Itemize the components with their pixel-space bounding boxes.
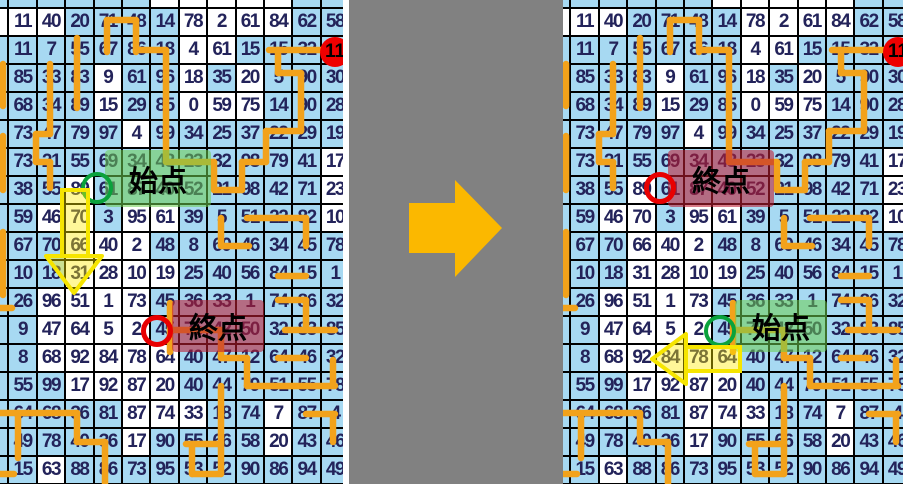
grid-cell: 46 — [797, 231, 827, 261]
grid-cell: 39 — [178, 203, 208, 233]
grid-cell: 29 — [121, 91, 151, 121]
grid-cell: 10 — [683, 259, 713, 289]
grid-cell: 20 — [797, 63, 827, 93]
grid-cell: 95 — [711, 455, 741, 484]
grid-cell: 79 — [235, 371, 265, 401]
grid-cell: 10 — [569, 259, 599, 289]
grid-cell: 38 — [569, 175, 599, 205]
grid-cell: 21 — [36, 147, 66, 177]
grid-cell: 95 — [149, 455, 179, 484]
grid-cell: 81 — [655, 399, 685, 429]
grid-cell: 34 — [740, 119, 770, 149]
grid-cell: 4 — [683, 119, 713, 149]
grid-cell: 31 — [64, 259, 94, 289]
grid-cell: 8 — [178, 231, 208, 261]
grid-cell: 17 — [882, 147, 903, 177]
grid-cell: 96 — [36, 287, 66, 317]
grid-cell: 10 — [882, 203, 903, 233]
grid-cell: 64 — [64, 315, 94, 345]
maze-panel-before: 1140207148147826184625811755678618461151… — [0, 0, 343, 484]
grid-cell: 48 — [683, 7, 713, 37]
grid-cell: 23 — [320, 175, 343, 205]
grid-cell: 46 — [882, 427, 903, 457]
grid-cell: 0 — [740, 91, 770, 121]
maze-panel-after: 1140207148147826184625811755678618461151… — [563, 0, 903, 484]
grid-cell: 78 — [882, 231, 903, 261]
grid-cell: 1 — [655, 287, 685, 317]
grid-cell: 92 — [93, 371, 123, 401]
grid-cell: 87 — [853, 399, 883, 429]
start-point-label: 始点 — [105, 150, 211, 207]
grid-cell: 48 — [149, 231, 179, 261]
grid-cell: 49 — [7, 427, 37, 457]
grid-cell: 47 — [36, 119, 66, 149]
grid-cell: 8 — [7, 343, 37, 373]
puzzle-comparison-figure: 1140207148147826184625811755678618461151… — [0, 0, 912, 484]
grid-cell: 26 — [569, 287, 599, 317]
grid-cell: 2 — [683, 231, 713, 261]
grid-cell: 28 — [93, 259, 123, 289]
grid-cell: 5 — [768, 203, 798, 233]
grid-cell: 51 — [263, 371, 293, 401]
grid-cell: 37 — [797, 119, 827, 149]
grid-cell: 45 — [853, 231, 883, 261]
grid-cell: 32 — [291, 35, 321, 65]
grid-cell: 46 — [235, 231, 265, 261]
grid-cell: 94 — [853, 455, 883, 484]
grid-cell: 4 — [121, 119, 151, 149]
grid-cell: 68 — [598, 343, 628, 373]
grid-cell: 5 — [825, 63, 855, 93]
grid-cell: 66 — [768, 427, 798, 457]
grid-cell: 73 — [683, 287, 713, 317]
grid-cell: 19 — [320, 119, 343, 149]
grid-cell: 35 — [206, 63, 236, 93]
grid-cell: 40 — [655, 231, 685, 261]
grid-cell: 33 — [36, 63, 66, 93]
grid-cell: 73 — [683, 455, 713, 484]
grid-cell: 97 — [93, 119, 123, 149]
grid-cell: 46 — [598, 203, 628, 233]
start-point-label: 始点 — [735, 300, 827, 352]
grid-cell: 49 — [569, 427, 599, 457]
grid-cell: 43 — [291, 427, 321, 457]
grid-cell: 99 — [36, 371, 66, 401]
grid-cell: 11 — [569, 35, 599, 65]
grid-cell: 74 — [235, 399, 265, 429]
grid-cell: 11 — [569, 7, 599, 37]
grid-cell: 98 — [235, 175, 265, 205]
grid-cell: 44 — [206, 371, 236, 401]
grid-cell: 79 — [64, 119, 94, 149]
grid-cell: 10 — [7, 259, 37, 289]
grid-cell: 82 — [291, 203, 321, 233]
grid-cell: 63 — [598, 455, 628, 484]
grid-cell: 30 — [320, 63, 343, 93]
grid-cell: 61 — [235, 7, 265, 37]
grid-cell: 26 — [7, 287, 37, 317]
grid-cell: 18 — [206, 399, 236, 429]
grid-cell: 25 — [178, 259, 208, 289]
grid-cell: 40 — [93, 231, 123, 261]
grid-cell: 78 — [36, 427, 66, 457]
grid-cell: 61 — [206, 35, 236, 65]
grid-cell: 32 — [320, 287, 343, 317]
grid-cell: 85 — [320, 315, 343, 345]
grid-cell: 22 — [263, 119, 293, 149]
grid-cell: 41 — [853, 147, 883, 177]
grid-cell: 61 — [149, 203, 179, 233]
grid-cell: 90 — [853, 63, 883, 93]
grid-cell: 10 — [121, 259, 151, 289]
grid-cell: 34 — [263, 231, 293, 261]
grid-cell: 95 — [683, 203, 713, 233]
grid-cell: 95 — [121, 203, 151, 233]
grid-cell: 9 — [655, 63, 685, 93]
grid-cell: 28 — [320, 91, 343, 121]
grid-cell: 96 — [598, 287, 628, 317]
grid-cell: 87 — [121, 399, 151, 429]
grid-cell: 7 — [598, 35, 628, 65]
grid-cell: 40 — [626, 427, 656, 457]
grid-cell: 78 — [740, 7, 770, 37]
grid-cell: 74 — [825, 287, 855, 317]
grid-cell: 67 — [93, 35, 123, 65]
grid-cell: 79 — [825, 147, 855, 177]
grid-cell: 17 — [320, 147, 343, 177]
grid-cell: 56 — [797, 259, 827, 289]
grid-cell: 36 — [64, 399, 94, 429]
grid-cell: 5 — [206, 203, 236, 233]
grid-cell: 32 — [853, 35, 883, 65]
grid-cell: 63 — [36, 455, 66, 484]
grid-cell: 51 — [64, 287, 94, 317]
grid-cell: 88 — [64, 455, 94, 484]
grid-cell: 15 — [7, 455, 37, 484]
grid-cell: 55 — [569, 371, 599, 401]
grid-cell: 17 — [683, 427, 713, 457]
grid-cell: 52 — [206, 455, 236, 484]
grid-cell: 15 — [655, 91, 685, 121]
grid-cell: 90 — [149, 427, 179, 457]
grid-cell: 2 — [121, 231, 151, 261]
grid-cell: 70 — [598, 231, 628, 261]
end-point-label: 終点 — [172, 300, 264, 352]
grid-cell: 46 — [853, 343, 883, 373]
grid-cell: 79 — [797, 371, 827, 401]
grid-cell: 2 — [206, 7, 236, 37]
grid-cell: 28 — [655, 259, 685, 289]
grid-cell: 18 — [149, 35, 179, 65]
grid-cell: 25 — [740, 259, 770, 289]
grid-cell: 78 — [178, 7, 208, 37]
grid-cell: 28 — [882, 91, 903, 121]
grid-cell: 92 — [64, 343, 94, 373]
grid-cell: 29 — [291, 119, 321, 149]
grid-cell: 87 — [683, 399, 713, 429]
grid-cell: 78 — [882, 371, 903, 401]
grid-cell: 58 — [882, 7, 903, 37]
grid-cell: 88 — [626, 455, 656, 484]
grid-cell: 55 — [740, 427, 770, 457]
grid-cell: 55 — [626, 147, 656, 177]
grid-cell: 86 — [683, 35, 713, 65]
grid-cell: 14 — [711, 7, 741, 37]
grid-cell: 90 — [291, 63, 321, 93]
grid-cell: 59 — [768, 91, 798, 121]
grid-cell: 40 — [740, 371, 770, 401]
grid-cell: 86 — [825, 455, 855, 484]
grid-cell: 70 — [626, 203, 656, 233]
grid-cell: 47 — [598, 119, 628, 149]
grid-cell: 40 — [206, 259, 236, 289]
grid-cell: 15 — [797, 35, 827, 65]
grid-cell: 30 — [882, 63, 903, 93]
grid-cell: 8 — [569, 343, 599, 373]
grid-cell: 17 — [121, 427, 151, 457]
grid-cell: 74 — [797, 399, 827, 429]
grid-cell: 20 — [825, 427, 855, 457]
grid-cell: 20 — [64, 7, 94, 37]
grid-cell: 55 — [853, 371, 883, 401]
end-point-label: 終点 — [668, 150, 774, 207]
grid-cell: 11 — [7, 7, 37, 37]
grid-cell: 56 — [235, 259, 265, 289]
start-circle-icon — [704, 315, 736, 347]
grid-cell: 99 — [149, 119, 179, 149]
grid-cell: 15 — [263, 35, 293, 65]
grid-cell: 14 — [149, 7, 179, 37]
grid-cell: 68 — [7, 91, 37, 121]
grid-cell: 84 — [655, 343, 685, 373]
grid-cell: 68 — [569, 91, 599, 121]
grid-cell: 73 — [7, 147, 37, 177]
panel-edge-strip — [903, 0, 912, 484]
grid-cell: 18 — [740, 63, 770, 93]
grid-cell: 96 — [149, 63, 179, 93]
grid-cell: 58 — [320, 7, 343, 37]
grid-cell: 78 — [683, 343, 713, 373]
grid-cell: 53 — [178, 455, 208, 484]
grid-cell: 29 — [683, 91, 713, 121]
grid-cell: 46 — [36, 203, 66, 233]
grid-cell: 5 — [263, 63, 293, 93]
grid-cell: 92 — [626, 343, 656, 373]
grid-cell: 86 — [291, 287, 321, 317]
grid-cell: 60 — [206, 231, 236, 261]
grid-cell: 15 — [93, 91, 123, 121]
grid-cell: 83 — [64, 63, 94, 93]
grid-cell: 15 — [569, 455, 599, 484]
grid-cell: 83 — [626, 63, 656, 93]
grid-cell: 99 — [711, 119, 741, 149]
grid-cell: 51 — [797, 203, 827, 233]
grid-cell: 51 — [235, 203, 265, 233]
grid-cell: 49 — [882, 455, 903, 484]
grid-cell: 67 — [7, 231, 37, 261]
grid-cell: 9 — [569, 315, 599, 345]
grid-cell: 33 — [598, 63, 628, 93]
grid-cell: 34 — [178, 119, 208, 149]
grid-cell: 82 — [853, 203, 883, 233]
grid-cell: 94 — [291, 455, 321, 484]
grid-cell: 55 — [626, 35, 656, 65]
grid-cell: 74 — [711, 399, 741, 429]
grid-cell: 25 — [768, 119, 798, 149]
grid-cell: 5 — [93, 315, 123, 345]
grid-cell: 18 — [178, 63, 208, 93]
grid-cell: 48 — [121, 7, 151, 37]
grid-cell: 41 — [291, 147, 321, 177]
grid-cell: 15 — [235, 35, 265, 65]
grid-cell: 61 — [121, 63, 151, 93]
grid-cell: 61 — [768, 35, 798, 65]
grid-cell: 48 — [711, 231, 741, 261]
grid-cell: 73 — [121, 455, 151, 484]
grid-cell: 39 — [740, 203, 770, 233]
grid-cell: 34 — [825, 231, 855, 261]
grid-cell: 17 — [64, 371, 94, 401]
grid-cell: 70 — [64, 203, 94, 233]
grid-cell: 66 — [626, 231, 656, 261]
grid-cell: 64 — [825, 343, 855, 373]
grid-cell: 84 — [825, 259, 855, 289]
grid-cell: 75 — [797, 91, 827, 121]
grid-cell: 20 — [626, 7, 656, 37]
grid-cell: 84 — [93, 343, 123, 373]
grid-cell: 51 — [626, 287, 656, 317]
grid-cell: 73 — [569, 147, 599, 177]
grid-cell: 23 — [882, 175, 903, 205]
grid-cell: 58 — [235, 427, 265, 457]
grid-cell: 98 — [235, 147, 265, 177]
grid-cell: 32 — [882, 287, 903, 317]
grid-cell: 78 — [320, 231, 343, 261]
grid-cell: 1 — [93, 287, 123, 317]
grid-cell: 89 — [626, 91, 656, 121]
grid-cell: 9 — [93, 63, 123, 93]
grid-cell: 74 — [149, 399, 179, 429]
grid-cell: 31 — [626, 259, 656, 289]
grid-cell: 70 — [36, 231, 66, 261]
grid-cell: 68 — [598, 399, 628, 429]
start-circle-icon — [81, 172, 113, 204]
goal-dot: 11 — [320, 37, 343, 67]
grid-cell: 99 — [598, 371, 628, 401]
grid-cell: 71 — [853, 175, 883, 205]
grid-cell: 2 — [768, 7, 798, 37]
grid-cell: 19 — [711, 259, 741, 289]
grid-cell: 55 — [7, 371, 37, 401]
grid-cell: 96 — [711, 63, 741, 93]
grid-cell: 4 — [320, 399, 343, 429]
grid-cell: 7 — [36, 35, 66, 65]
grid-cell: 18 — [36, 259, 66, 289]
grid-cell: 25 — [206, 119, 236, 149]
grid-cell: 18 — [768, 399, 798, 429]
middle-gray-band — [349, 0, 563, 484]
grid-cell: 58 — [797, 427, 827, 457]
grid-cell: 55 — [64, 35, 94, 65]
grid-cell: 74 — [263, 287, 293, 317]
grid-cell: 34 — [598, 91, 628, 121]
grid-cell: 51 — [825, 371, 855, 401]
grid-cell: 53 — [740, 455, 770, 484]
grid-cell: 21 — [598, 147, 628, 177]
grid-cell: 86 — [121, 35, 151, 65]
grid-cell: 97 — [655, 119, 685, 149]
grid-cell: 66 — [206, 427, 236, 457]
grid-cell: 19 — [149, 259, 179, 289]
grid-cell: 0 — [178, 91, 208, 121]
grid-cell: 46 — [320, 427, 343, 457]
grid-cell: 7 — [825, 399, 855, 429]
grid-cell: 68 — [36, 343, 66, 373]
grid-cell: 19 — [882, 119, 903, 149]
grid-cell: 86 — [93, 455, 123, 484]
grid-cell: 81 — [93, 399, 123, 429]
grid-cell: 34 — [36, 91, 66, 121]
grid-cell: 1 — [882, 259, 903, 289]
grid-cell: 40 — [178, 371, 208, 401]
grid-cell: 59 — [569, 203, 599, 233]
grid-cell: 60 — [768, 231, 798, 261]
end-circle-icon — [141, 315, 173, 347]
grid-cell: 36 — [93, 427, 123, 457]
grid-cell: 15 — [853, 259, 883, 289]
grid-cell: 4 — [740, 35, 770, 65]
grid-cell: 4 — [882, 399, 903, 429]
grid-cell: 36 — [655, 427, 685, 457]
grid-cell: 90 — [797, 455, 827, 484]
grid-cell: 49 — [320, 455, 343, 484]
grid-cell: 18 — [711, 35, 741, 65]
grid-cell: 62 — [853, 7, 883, 37]
grid-cell: 44 — [768, 371, 798, 401]
grid-cell: 3 — [93, 203, 123, 233]
grid-cell: 61 — [797, 7, 827, 37]
grid-cell: 73 — [121, 287, 151, 317]
grid-cell: 68 — [36, 399, 66, 429]
grid-cell: 87 — [291, 399, 321, 429]
grid-cell: 64 — [263, 343, 293, 373]
grid-cell: 75 — [235, 91, 265, 121]
grid-cell: 8 — [740, 231, 770, 261]
grid-cell: 90 — [711, 427, 741, 457]
grid-cell: 33 — [178, 399, 208, 429]
grid-cell: 64 — [626, 315, 656, 345]
grid-cell: 59 — [206, 91, 236, 121]
grid-cell: 73 — [7, 119, 37, 149]
grid-cell: 85 — [882, 315, 903, 345]
grid-cell: 90 — [291, 91, 321, 121]
grid-cell: 90 — [853, 91, 883, 121]
grid-cell: 55 — [36, 175, 66, 205]
grid-cell: 42 — [825, 175, 855, 205]
grid-cell: 32 — [263, 315, 293, 345]
grid-cell: 78 — [320, 371, 343, 401]
grid-cell: 9 — [7, 315, 37, 345]
grid-cell: 14 — [825, 91, 855, 121]
grid-cell: 61 — [683, 63, 713, 93]
grid-cell: 66 — [64, 231, 94, 261]
grid-cell: 73 — [569, 119, 599, 149]
grid-cell: 89 — [64, 91, 94, 121]
grid-cell: 3 — [655, 203, 685, 233]
grid-cell: 67 — [569, 231, 599, 261]
grid-cell: 71 — [655, 7, 685, 37]
grid-cell: 83 — [291, 315, 321, 345]
